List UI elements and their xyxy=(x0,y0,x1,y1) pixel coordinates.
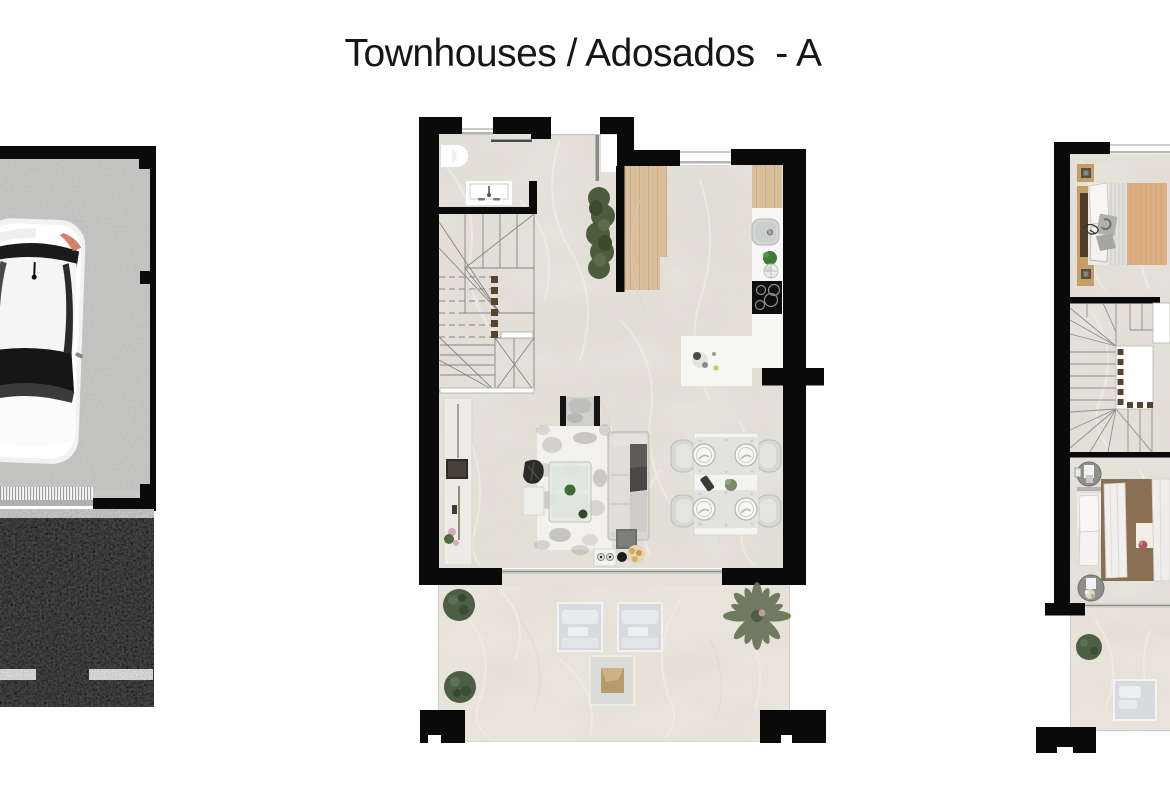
svg-text:Townhouses / Adosados - A: Townhouses / Adosados - A xyxy=(345,32,822,75)
